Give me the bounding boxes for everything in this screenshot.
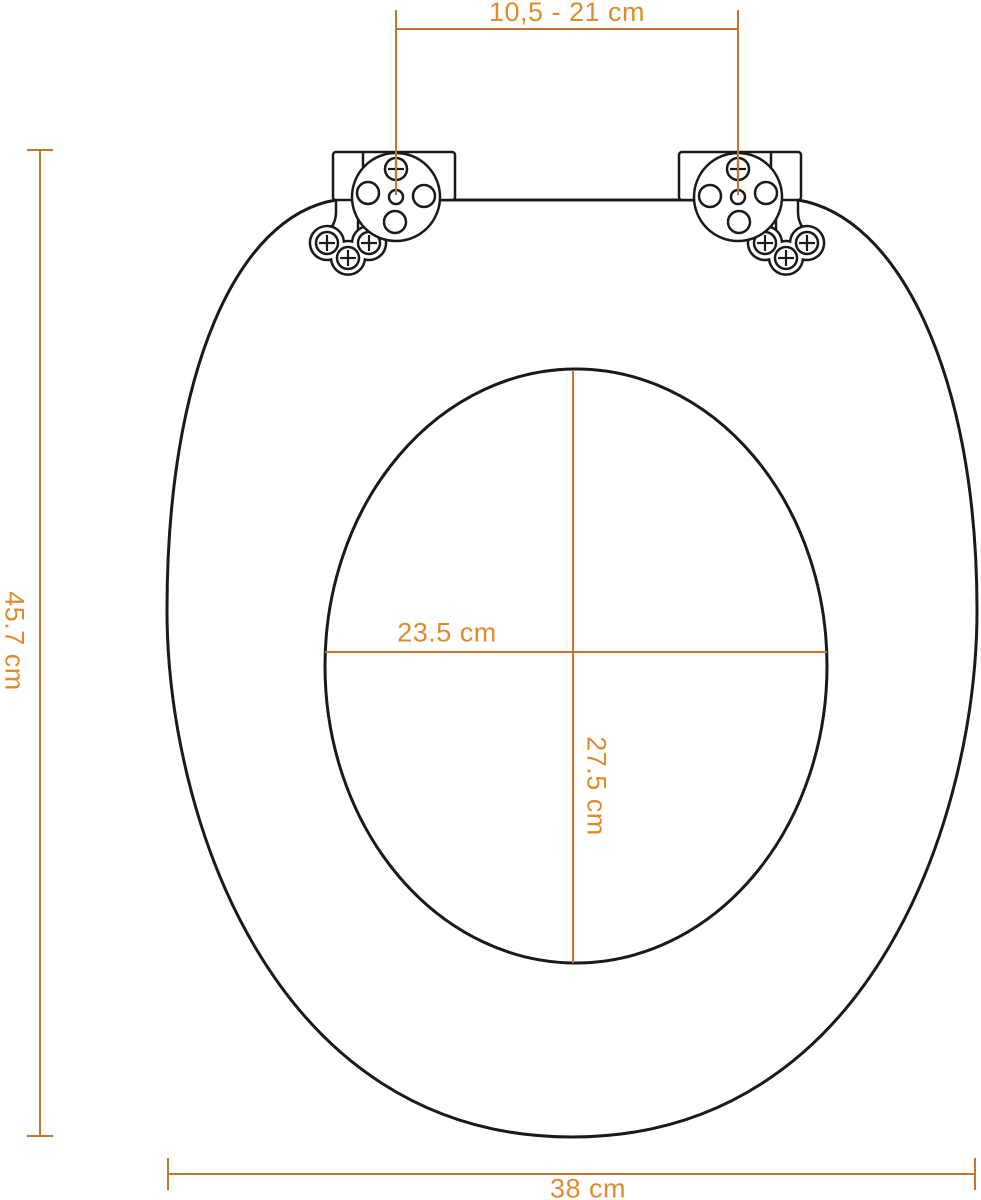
diagram-canvas: 10,5 - 21 cm 45.7 cm 23.5 cm 27.5 cm 38 … <box>0 0 981 1200</box>
hinge-hole <box>384 211 406 233</box>
seat-diagram-svg <box>0 0 981 1200</box>
screw-icon <box>337 247 359 269</box>
overall-width-label: 38 cm <box>550 1176 626 1200</box>
hinge-distance-label: 10,5 - 21 cm <box>489 0 645 26</box>
hole-width-label: 23.5 cm <box>397 620 497 647</box>
hinge-hole <box>413 185 435 207</box>
screw-icon <box>775 247 797 269</box>
screw-icon <box>796 232 818 254</box>
screw-icon <box>316 232 338 254</box>
overall-length-label: 45.7 cm <box>1 591 28 691</box>
hole-length-label: 27.5 cm <box>583 736 610 836</box>
hinge-hole <box>728 211 750 233</box>
hinge-hole <box>699 185 721 207</box>
hinge-hole <box>357 182 379 204</box>
seat-hole <box>325 369 827 963</box>
hinge-hole <box>755 182 777 204</box>
